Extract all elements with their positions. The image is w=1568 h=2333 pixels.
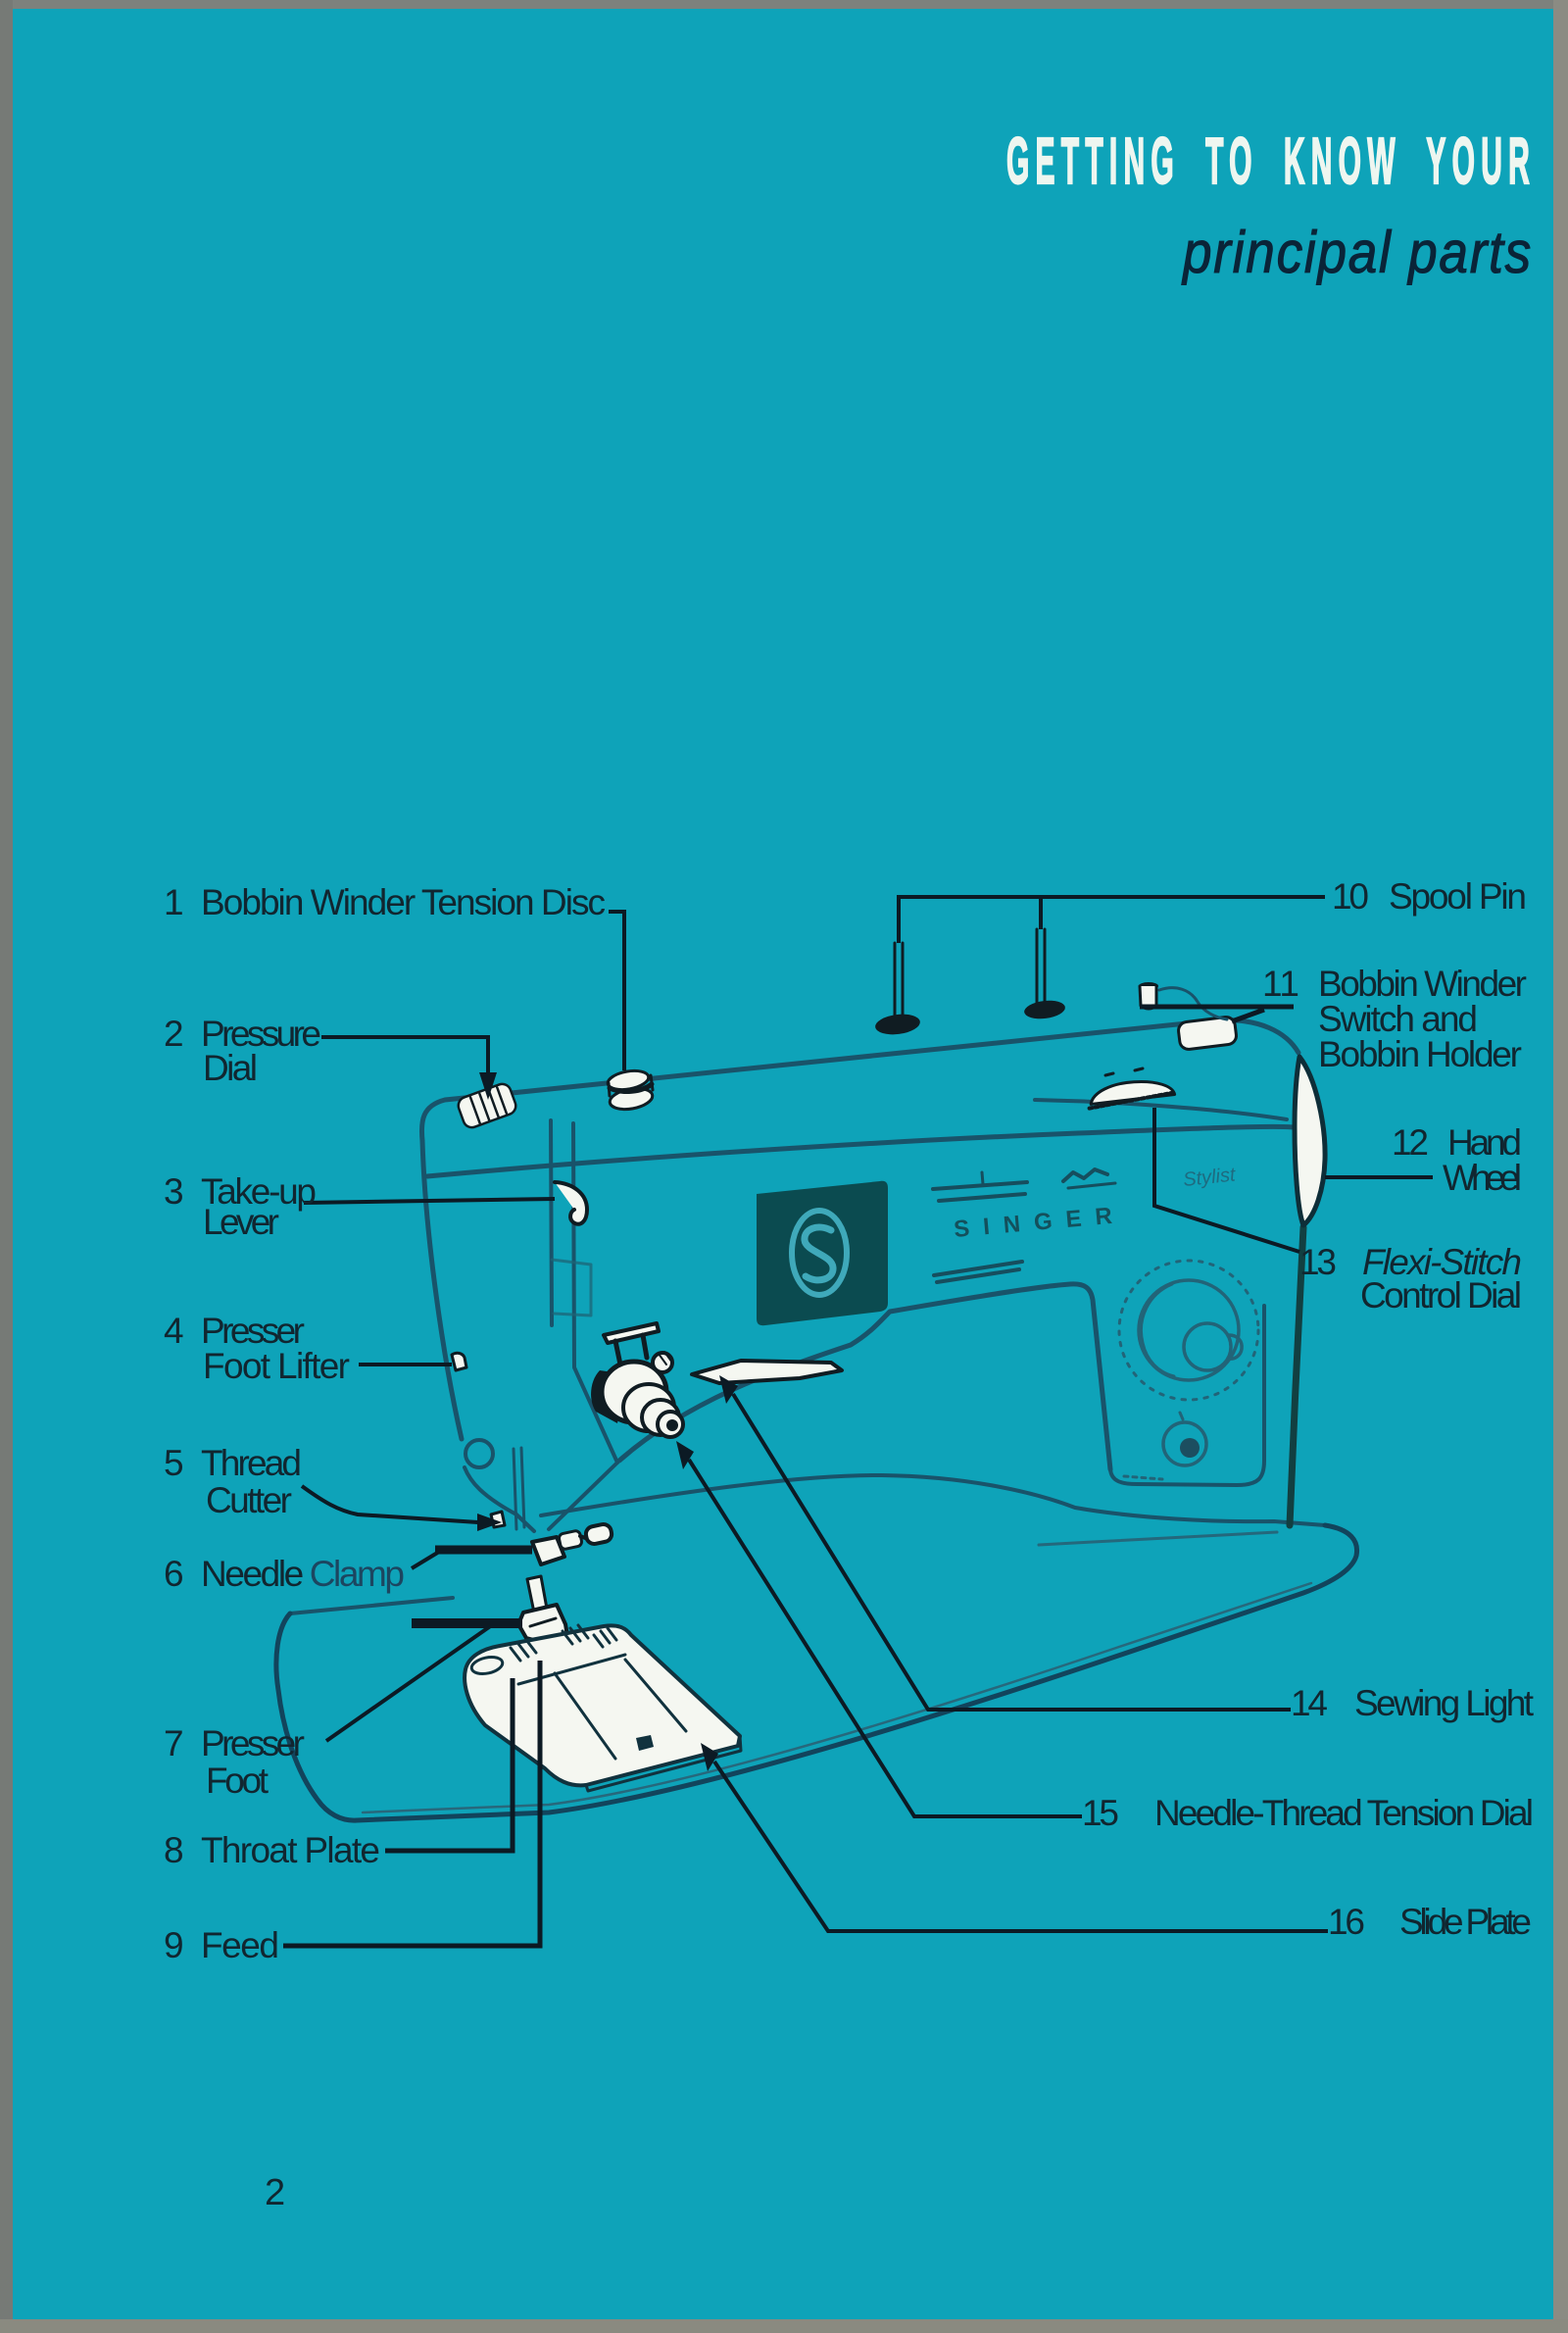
svg-text:Needle-Thread Tension Dial: Needle-Thread Tension Dial (1154, 1793, 1534, 1833)
svg-text:7: 7 (164, 1723, 184, 1763)
svg-text:Presser: Presser (201, 1723, 305, 1763)
svg-text:Wheel: Wheel (1443, 1158, 1522, 1198)
svg-text:Presser: Presser (201, 1311, 305, 1351)
svg-text:15: 15 (1082, 1793, 1119, 1833)
svg-text:Sewing Light: Sewing Light (1354, 1683, 1535, 1723)
svg-text:12: 12 (1392, 1122, 1429, 1163)
svg-text:11: 11 (1262, 964, 1299, 1004)
svg-text:Foot: Foot (206, 1761, 269, 1801)
svg-text:6: 6 (164, 1554, 184, 1594)
svg-text:Cutter: Cutter (206, 1480, 292, 1520)
svg-text:Lever: Lever (203, 1202, 279, 1242)
svg-text:Bobbin Winder: Bobbin Winder (1318, 964, 1527, 1004)
svg-text:Control Dial: Control Dial (1360, 1275, 1522, 1315)
svg-text:Throat Plate: Throat Plate (201, 1830, 380, 1870)
svg-text:principal parts: principal parts (1181, 220, 1533, 285)
svg-text:2: 2 (265, 2172, 285, 2213)
svg-text:Slide Plate: Slide Plate (1399, 1902, 1532, 1942)
svg-text:4: 4 (164, 1311, 184, 1351)
svg-text:Dial: Dial (203, 1048, 258, 1088)
svg-text:Spool Pin: Spool Pin (1389, 876, 1527, 917)
svg-text:GETTING TO KNOW YOUR: GETTING TO KNOW YOUR (1006, 124, 1536, 198)
svg-text:Bobbin Winder Tension Disc: Bobbin Winder Tension Disc (201, 882, 606, 922)
svg-text:Needle Clamp: Needle Clamp (201, 1554, 405, 1594)
svg-text:9: 9 (164, 1925, 184, 1965)
svg-text:Foot Lifter: Foot Lifter (203, 1346, 350, 1386)
svg-text:13: 13 (1299, 1242, 1337, 1282)
svg-text:3: 3 (164, 1171, 184, 1212)
svg-text:Switch and: Switch and (1318, 999, 1478, 1039)
svg-text:Thread: Thread (201, 1443, 302, 1483)
svg-text:14: 14 (1291, 1683, 1328, 1723)
svg-text:16: 16 (1328, 1902, 1365, 1942)
svg-text:Feed: Feed (201, 1925, 279, 1965)
svg-text:1: 1 (164, 882, 184, 922)
svg-text:Bobbin Holder: Bobbin Holder (1318, 1034, 1522, 1074)
svg-text:5: 5 (164, 1443, 184, 1483)
svg-text:10: 10 (1332, 876, 1369, 917)
svg-text:Hand: Hand (1447, 1122, 1522, 1163)
svg-text:8: 8 (164, 1830, 184, 1870)
svg-text:2: 2 (164, 1014, 184, 1054)
